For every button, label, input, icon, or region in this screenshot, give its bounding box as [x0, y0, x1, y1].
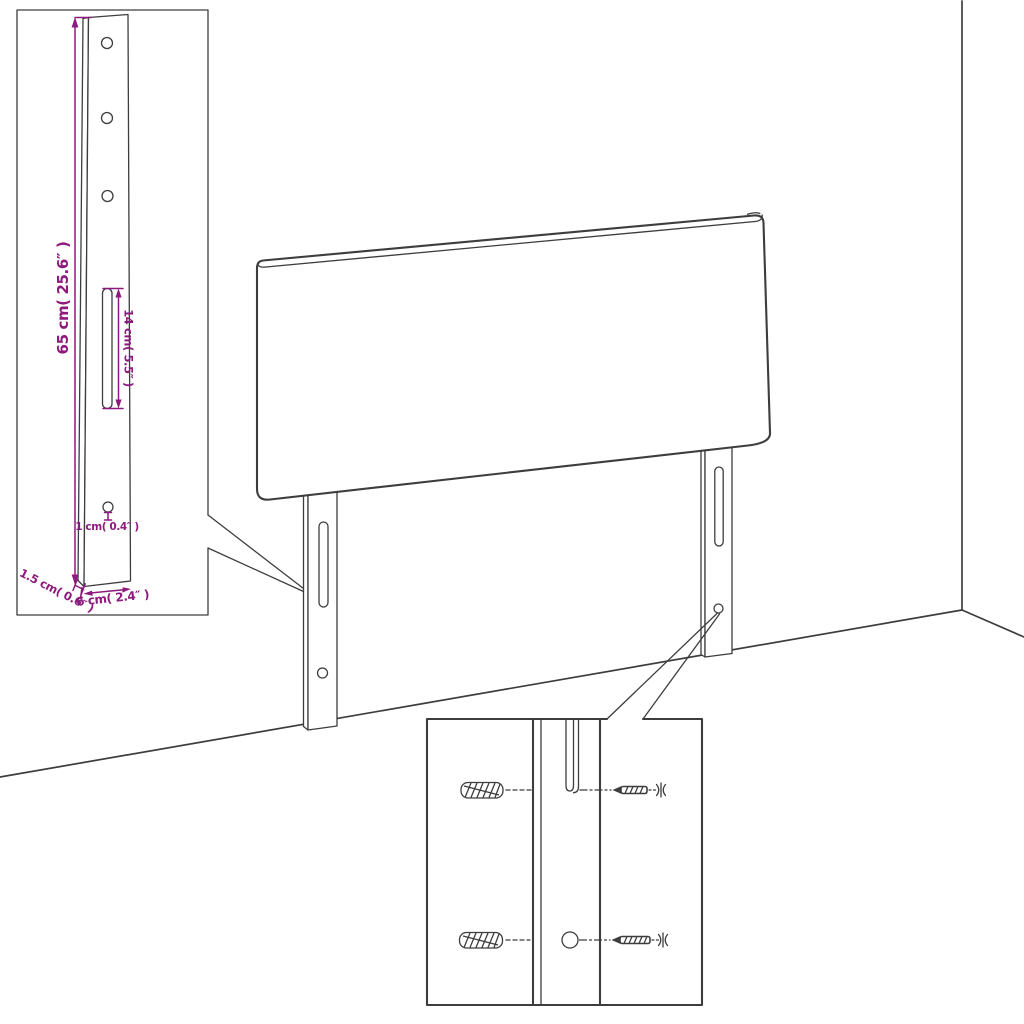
left-leg — [304, 482, 338, 730]
dimension-slot-label: 14 cm( 5.5″ ) — [122, 309, 136, 387]
left-leg-side-face — [304, 482, 309, 730]
mounting-detail-inset — [427, 719, 702, 1005]
inset-leg-slot — [103, 289, 113, 409]
inset-leg-small-hole — [103, 502, 113, 512]
inset-box-bg — [427, 719, 702, 1005]
dimension-height-label: 65 cm( 25.6″ ) — [54, 242, 72, 355]
diagram-canvas: 65 cm( 25.6″ ) 14 cm( 5.5″ ) 1 cm( 0.4″ … — [0, 0, 1024, 1024]
inset-callout-lines — [208, 515, 304, 592]
inset-leg-hole-3 — [102, 191, 113, 202]
left-leg-slot — [319, 522, 328, 607]
inset-leg-hole-1 — [102, 38, 113, 49]
left-leg-hole — [318, 668, 328, 678]
leg-strip-hole — [562, 932, 578, 948]
inset-leg-hole-2 — [102, 113, 113, 124]
floor-line-right — [962, 610, 1024, 637]
dimension-hole-label: 1 cm( 0.4″ ) — [75, 521, 139, 533]
right-leg-slot — [715, 467, 723, 546]
headboard-outline — [257, 215, 770, 499]
headboard-panel — [257, 213, 770, 500]
right-leg-hole — [714, 604, 723, 613]
